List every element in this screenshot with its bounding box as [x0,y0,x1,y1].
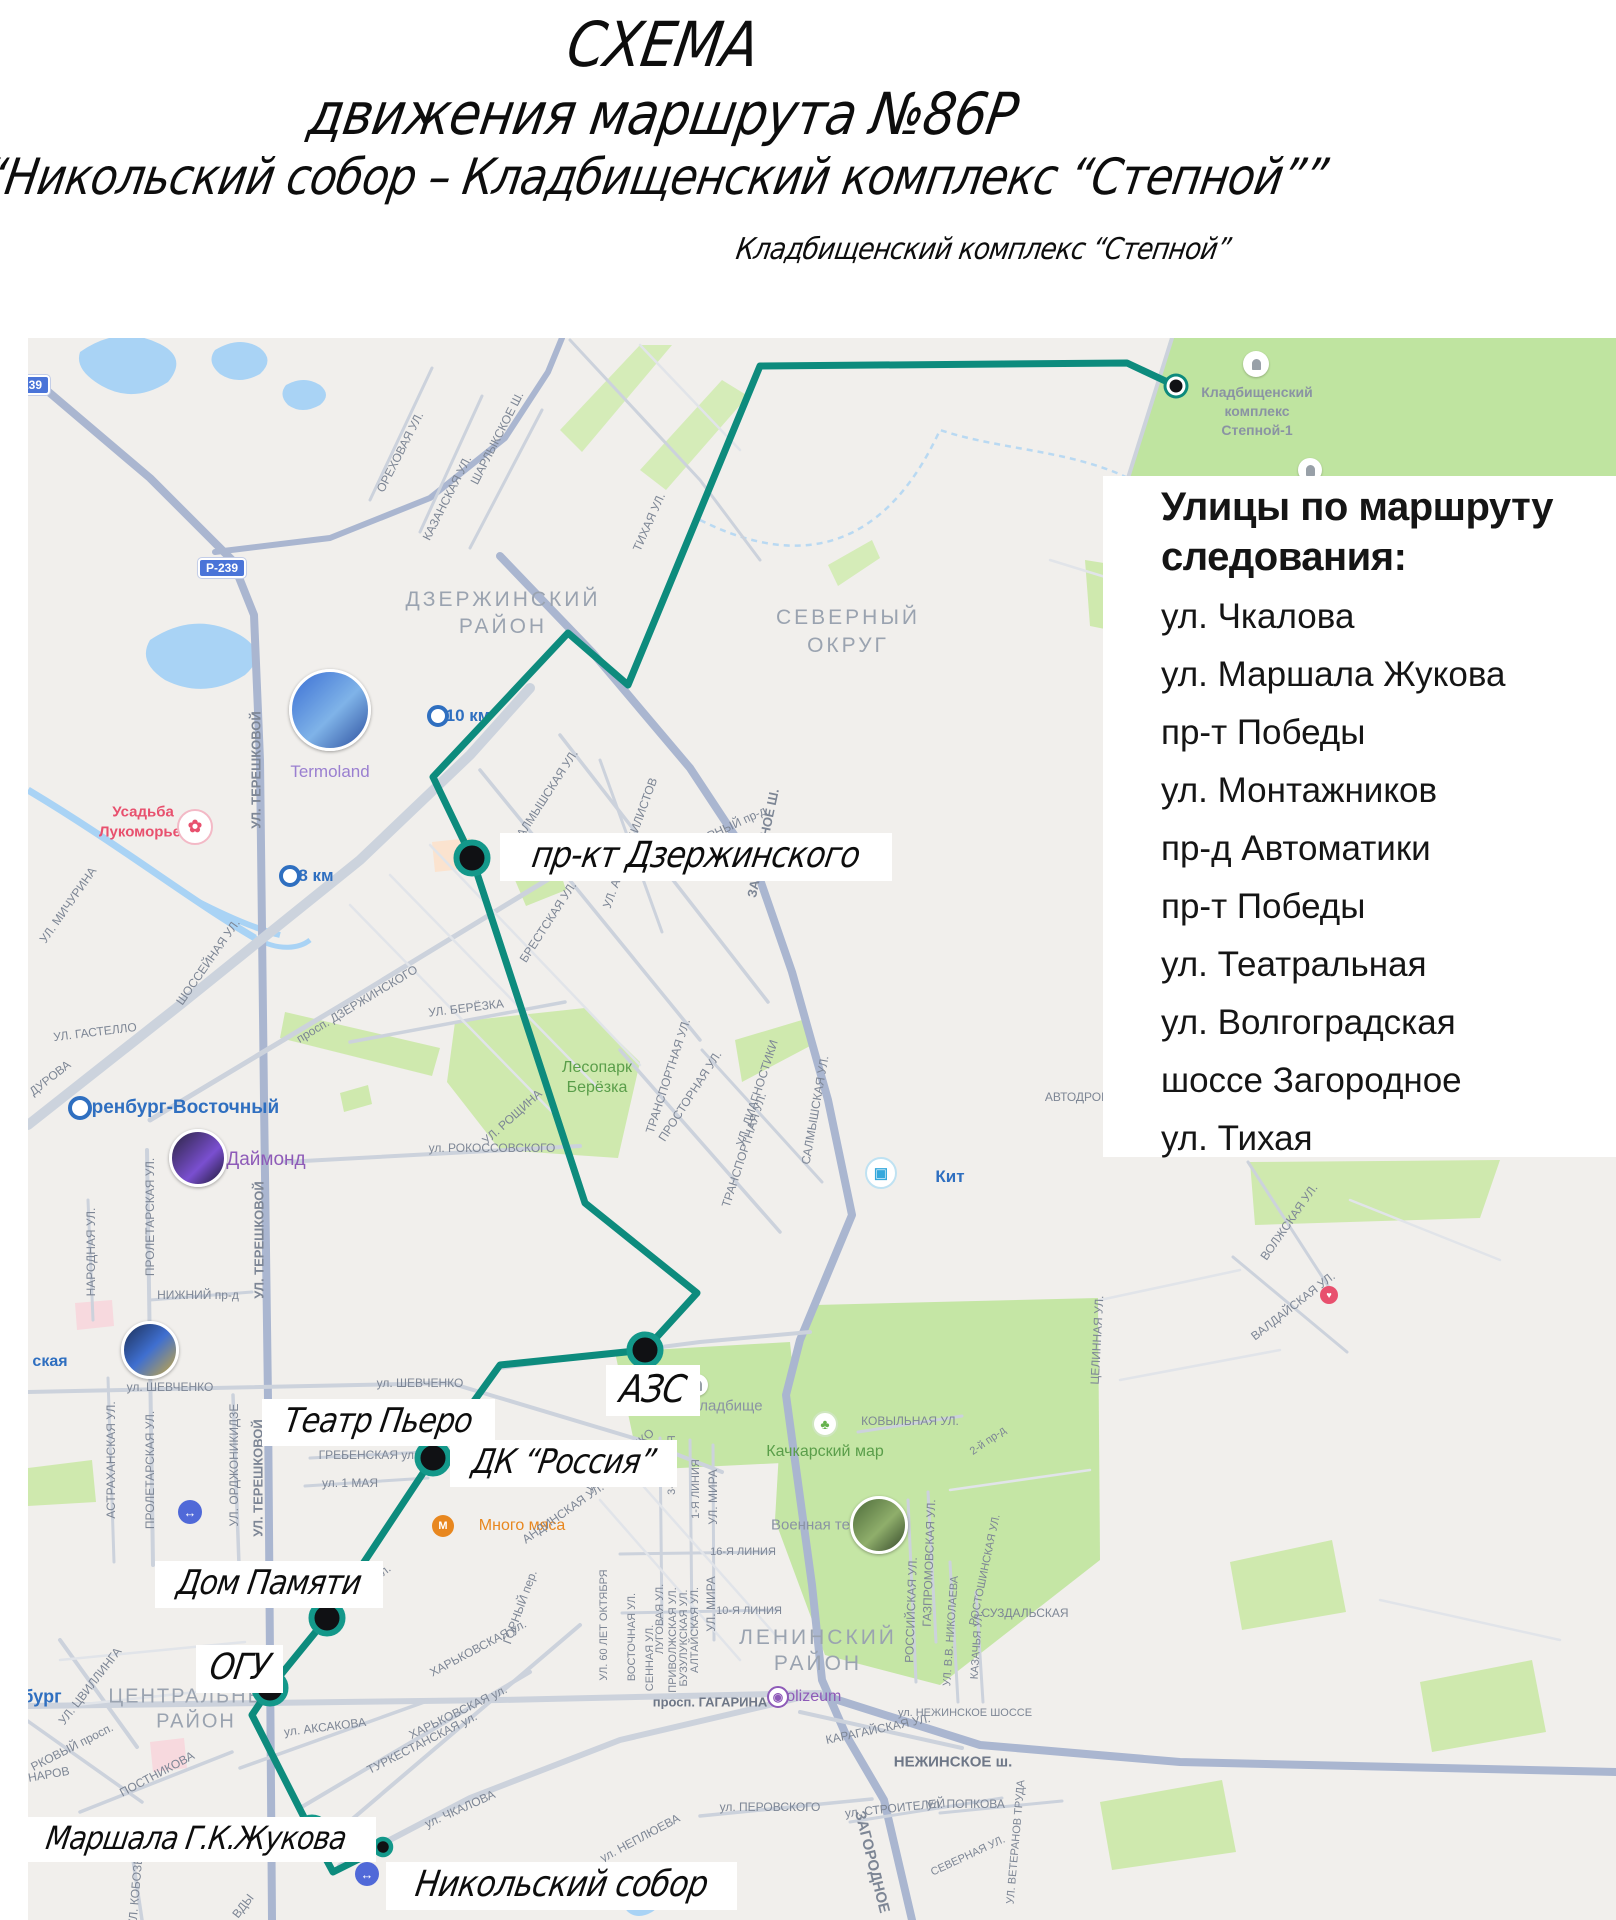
street-item-4: ул. Монтажников [1161,762,1616,820]
stop-label-azs: АЗС [606,1365,700,1416]
street-item-3: пр-т Победы [1161,704,1616,762]
title-text-2: движения маршрута №86Р [304,80,1022,148]
title-text-3: “Никольский собор – Кладбищенский компле… [0,148,1331,206]
stop-label-marshala-zhukova: Маршала Г.К.Жукова [28,1817,376,1862]
street-item-5: пр-д Автоматики [1161,820,1616,878]
street-item-6: пр-т Победы [1161,878,1616,936]
street-item-10: ул. Тихая [1161,1110,1616,1168]
streets-list: ул. Чкаловаул. Маршала Жуковапр-т Победы… [1161,588,1616,1168]
stop-label-dom-pamyati: Дом Памяти [155,1561,383,1608]
street-item-2: ул. Маршала Жукова [1161,646,1616,704]
page-title-line3: “Никольский собор – Кладбищенский компле… [0,148,1418,206]
street-item-7: ул. Театральная [1161,936,1616,994]
street-item-9: шоссе Загородное [1161,1052,1616,1110]
stop-label-dk-rossiya: ДК “Россия” [450,1440,677,1487]
stop-label-teatr-piero-text: Театр Пьеро [282,1401,475,1441]
title-text-1: СХЕМА [562,8,764,81]
stop-label-nikolsky-sobor: Никольский собор [386,1862,737,1910]
stop-label-prkt-dzerzhinskogo-text: пр-кт Дзержинского [529,835,863,876]
endpoint-caption: Кладбищенский комплекс “Степной” [703,232,1264,267]
stop-label-teatr-piero: Театр Пьеро [262,1399,495,1446]
route-scheme-page: { "title": { "line1": "СХЕМА", "line2": … [0,0,1616,1920]
stop-label-dom-pamyati-text: Дом Памяти [174,1563,364,1603]
map-canvas: ОРЕХОВАЯ УЛ.КАЗАНСКАЯ УЛ.ШАРЛЫКСКОЕ Ш.УЛ… [28,338,1616,1920]
streets-panel-heading-1: Улицы по маршруту [1161,482,1616,532]
stop-label-azs-text: АЗС [617,1367,689,1411]
endpoint-caption-text: Кладбищенский комплекс “Степной” [734,232,1233,267]
stop-label-dk-rossiya-text: ДК “Россия” [469,1442,657,1482]
stop-label-ogu-text: ОГУ [207,1647,273,1688]
stop-label-prkt-dzerzhinskogo: пр-кт Дзержинского [500,833,892,881]
street-item-8: ул. Волгоградская [1161,994,1616,1052]
stop-label-ogu: ОГУ [196,1645,283,1693]
stop-label-nikolsky-sobor-text: Никольский собор [413,1864,711,1905]
stop-label-marshala-zhukova-text: Маршала Г.К.Жукова [43,1819,349,1857]
page-title-line1: СХЕМА [555,8,771,81]
street-item-1: ул. Чкалова [1161,588,1616,646]
streets-panel-heading-2: следования: [1161,532,1616,582]
page-title-line2: движения маршрута №86Р [261,80,1065,148]
streets-panel: Улицы по маршруту следования: ул. Чкалов… [1103,476,1616,1157]
